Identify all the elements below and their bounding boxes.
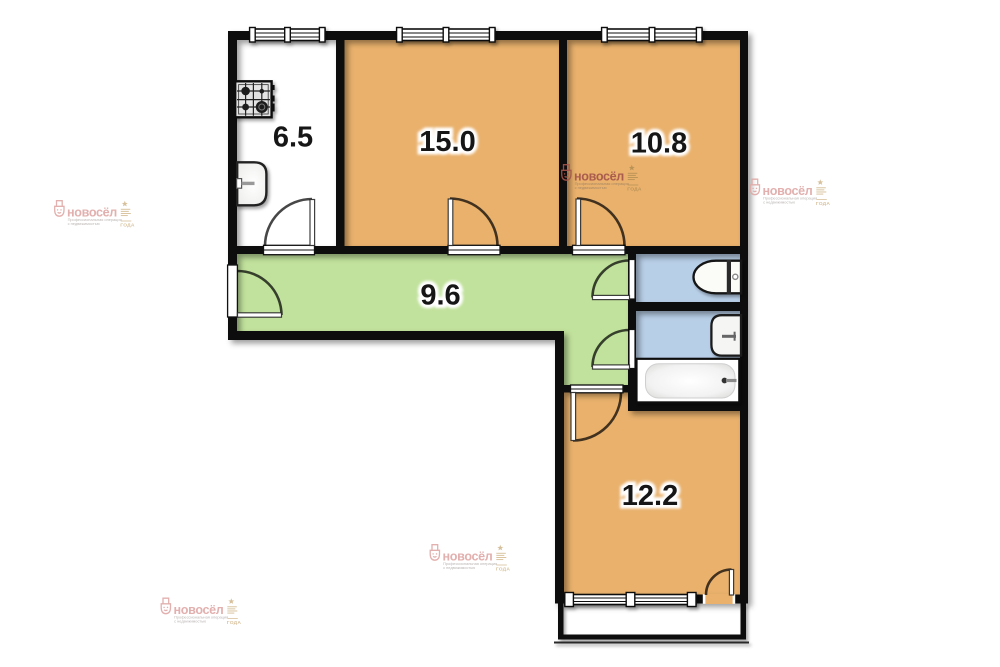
svg-text:15.0: 15.0	[419, 126, 475, 158]
svg-text:6.5: 6.5	[273, 122, 313, 154]
svg-text:12.2: 12.2	[622, 480, 678, 512]
svg-text:9.6: 9.6	[420, 280, 460, 312]
svg-text:10.8: 10.8	[631, 128, 687, 160]
